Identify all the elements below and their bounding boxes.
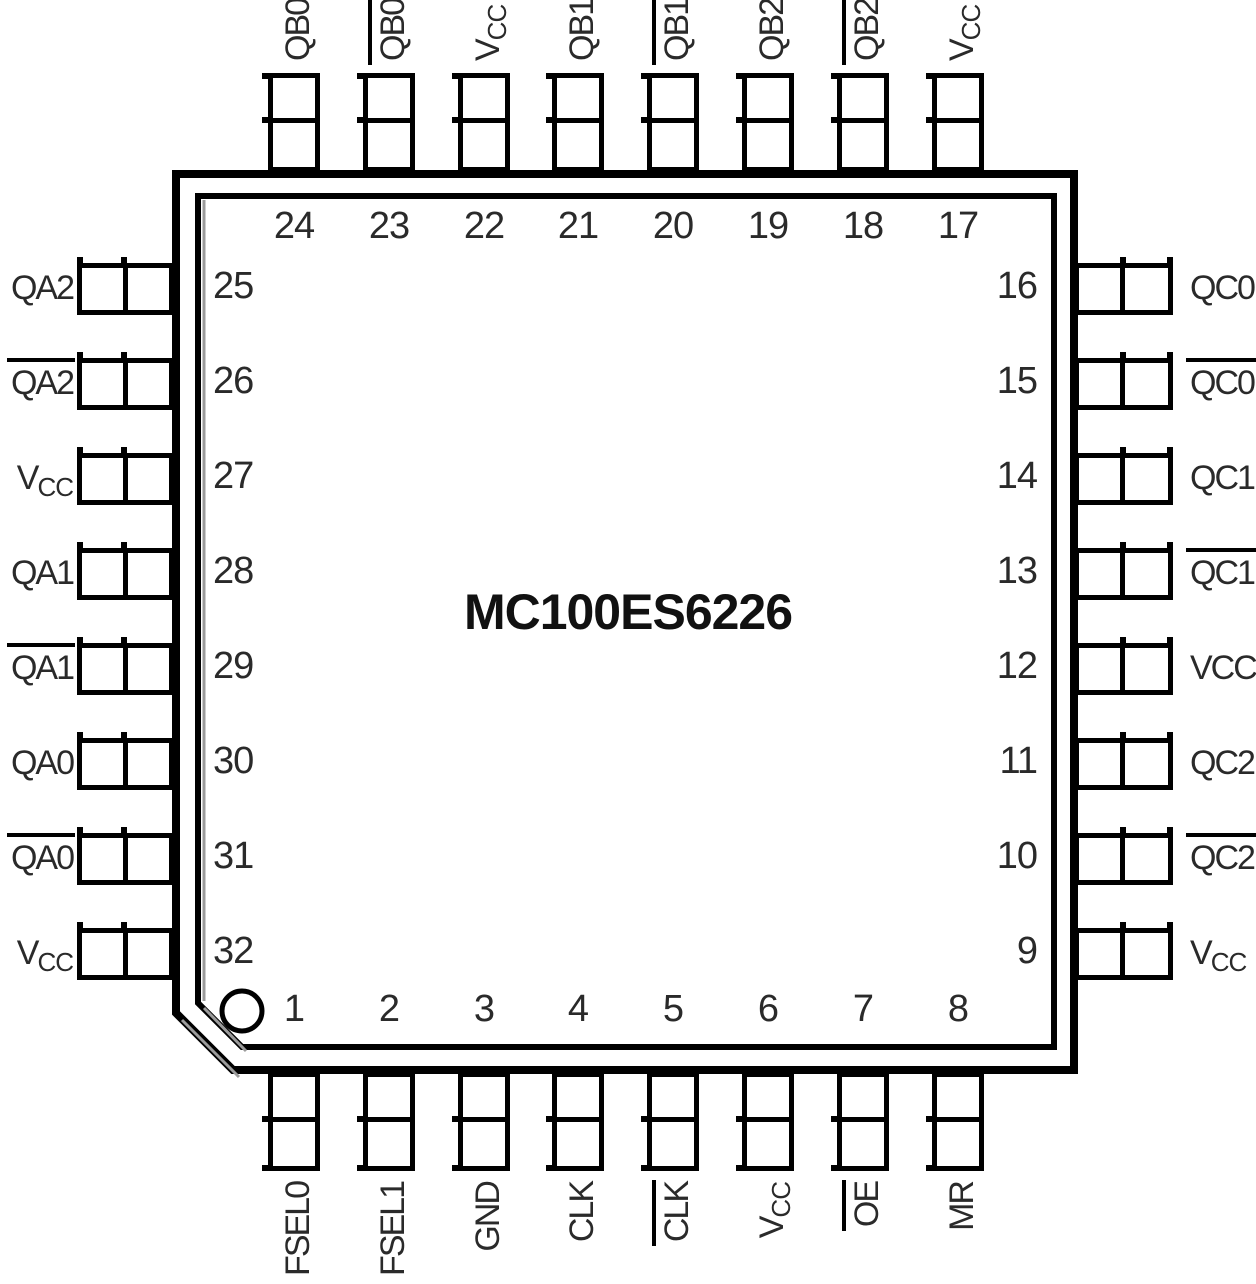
pin-7-label-text: OE — [842, 1180, 886, 1231]
pin-25-label-text: QA2 — [7, 263, 75, 307]
pin-18-number: 18 — [818, 205, 908, 247]
pin-9-label-text: VCC — [1186, 928, 1248, 974]
pin-30-box — [77, 738, 174, 790]
pin-16-box — [1074, 263, 1173, 315]
pin-6-tick-0 — [736, 1116, 742, 1122]
pin-5-label: CLK — [652, 1180, 694, 1284]
pin-25-divider — [123, 263, 128, 315]
pin-7-label-main: OE — [848, 1182, 886, 1227]
pin-7-tick-1 — [831, 1165, 837, 1171]
pin-21-box — [552, 73, 604, 172]
pin-29-label: QA1 — [0, 643, 75, 687]
pin-10-number: 10 — [947, 835, 1037, 877]
pin-11-label: QC2 — [1186, 738, 1256, 782]
pin-17-box — [932, 73, 984, 172]
pin-29-label-text: QA1 — [7, 643, 75, 687]
pin-4-label: CLK — [557, 1180, 599, 1284]
pin-6-box — [742, 1072, 794, 1171]
pin-6-tick-1 — [736, 1165, 742, 1171]
pin-7-tick-0 — [831, 1116, 837, 1122]
pin-8-label-text: MR — [937, 1180, 981, 1235]
pin-32-divider — [123, 928, 128, 980]
pin-9-label: VCC — [1186, 928, 1256, 974]
pin-4-tick-1 — [546, 1165, 552, 1171]
pin-5-tick-0 — [641, 1116, 647, 1122]
pin-16-label-main: QC0 — [1190, 269, 1254, 307]
pin-12-label-main: VCC — [1190, 649, 1256, 687]
pin-23-label: QB0 — [368, 0, 410, 65]
pin-20-divider — [647, 118, 699, 123]
pin-15-tick-1 — [1167, 352, 1173, 358]
pin-11-tick-0 — [1120, 732, 1126, 738]
pin-3-tick-0 — [452, 1116, 458, 1122]
pin-2-number: 2 — [344, 988, 434, 1030]
pin-31-tick-0 — [77, 827, 83, 833]
pin-27-label-main: V — [17, 459, 38, 497]
pin-29-number: 29 — [213, 645, 303, 687]
pin-3-label: GND — [463, 1180, 505, 1284]
pin-28-tick-0 — [77, 542, 83, 548]
pin-20-box — [647, 73, 699, 172]
pin-12-tick-0 — [1120, 637, 1126, 643]
pin-24-label: QB0 — [273, 0, 315, 65]
pin-16-tick-0 — [1120, 257, 1126, 263]
pin-5-box — [647, 1072, 699, 1171]
pin-3-label-main: GND — [469, 1182, 507, 1252]
pin-28-label-text: QA1 — [7, 548, 75, 592]
pin-7-divider — [837, 1117, 889, 1122]
pin-20-tick-0 — [641, 73, 647, 79]
pin-26-divider — [123, 358, 128, 410]
pin-29-tick-0 — [77, 637, 83, 643]
pin-11-divider — [1120, 738, 1125, 790]
pin-27-number: 27 — [213, 455, 303, 497]
pin-28-label: QA1 — [0, 548, 75, 592]
pin-20-label-main: QB1 — [658, 0, 696, 61]
pin-19-label-main: QB2 — [753, 0, 791, 61]
pin-11-label-main: QC2 — [1190, 744, 1254, 782]
pin-3-number: 3 — [439, 988, 529, 1030]
pin-23-box — [363, 73, 415, 172]
pin-3-label-text: GND — [463, 1180, 507, 1256]
pin-22-label-sub: CC — [482, 5, 512, 41]
pin-18-label-text: QB2 — [842, 0, 886, 65]
pin-31-tick-1 — [121, 827, 127, 833]
pin-32-label-main: V — [17, 934, 38, 972]
pin-16-number: 16 — [947, 265, 1037, 307]
pin-31-box — [77, 833, 174, 885]
pin-31-number: 31 — [213, 835, 303, 877]
pin-22-box — [458, 73, 510, 172]
pin-21-number: 21 — [533, 205, 623, 247]
pin-2-tick-1 — [357, 1165, 363, 1171]
pin-17-divider — [932, 118, 984, 123]
chip-part-number: MC100ES6226 — [328, 586, 928, 638]
pin-6-label-sub: CC — [766, 1182, 796, 1218]
pin-4-number: 4 — [533, 988, 623, 1030]
pin-14-label-main: QC1 — [1190, 459, 1254, 497]
pin-6-label-main: V — [753, 1218, 791, 1239]
pin-10-label-main: QC2 — [1190, 839, 1254, 877]
pin-31-label: QA0 — [0, 833, 75, 877]
pin-4-divider — [552, 1117, 604, 1122]
pin-14-box — [1074, 453, 1173, 505]
pin-20-number: 20 — [628, 205, 718, 247]
pin-24-tick-0 — [262, 73, 268, 79]
pin-26-label-text: QA2 — [7, 358, 75, 402]
pin-21-divider — [552, 118, 604, 123]
pin-1-divider — [268, 1117, 320, 1122]
pin-10-tick-1 — [1167, 827, 1173, 833]
pin-19-box — [742, 73, 794, 172]
pin-13-label-text: QC1 — [1186, 548, 1256, 592]
pin-27-label: VCC — [0, 453, 75, 499]
pin-22-tick-0 — [452, 73, 458, 79]
pin-7-box — [837, 1072, 889, 1171]
pin-9-label-main: V — [1190, 934, 1211, 972]
pin-13-tick-1 — [1167, 542, 1173, 548]
pin-15-box — [1074, 358, 1173, 410]
pin-32-label: VCC — [0, 928, 75, 974]
pin-20-label: QB1 — [652, 0, 694, 65]
pin-12-label: VCC — [1186, 643, 1256, 687]
pin-25-tick-0 — [77, 257, 83, 263]
pin-28-number: 28 — [213, 550, 303, 592]
pin-15-label-text: QC0 — [1186, 358, 1256, 402]
pin-15-tick-0 — [1120, 352, 1126, 358]
pin-28-tick-1 — [121, 542, 127, 548]
pin-27-divider — [123, 453, 128, 505]
pin-24-label-text: QB0 — [273, 0, 317, 65]
pin-15-label-main: QC0 — [1190, 364, 1254, 402]
pin-19-label: QB2 — [747, 0, 789, 65]
pin-3-box — [458, 1072, 510, 1171]
pin-13-tick-0 — [1120, 542, 1126, 548]
pin-9-tick-1 — [1167, 922, 1173, 928]
pin-12-label-text: VCC — [1186, 643, 1256, 687]
pin-26-number: 26 — [213, 360, 303, 402]
pin-9-number: 9 — [947, 930, 1037, 972]
pin-6-label: VCC — [747, 1180, 789, 1284]
pin-15-number: 15 — [947, 360, 1037, 402]
pin-16-label: QC0 — [1186, 263, 1256, 307]
pin-2-divider — [363, 1117, 415, 1122]
pin-23-label-text: QB0 — [368, 0, 412, 65]
pin-17-number: 17 — [913, 205, 1003, 247]
pin-24-tick-1 — [262, 117, 268, 123]
pin-11-number: 11 — [947, 740, 1037, 782]
pin-8-box — [932, 1072, 984, 1171]
pin-28-box — [77, 548, 174, 600]
pin-1-label: FSEL0 — [273, 1180, 315, 1284]
pin-21-tick-1 — [546, 117, 552, 123]
pin-14-divider — [1120, 453, 1125, 505]
pin-27-tick-1 — [121, 447, 127, 453]
pin-23-tick-0 — [357, 73, 363, 79]
pin-17-label: VCC — [937, 0, 979, 65]
pin-8-tick-1 — [926, 1165, 932, 1171]
pin-29-label-main: QA1 — [11, 649, 73, 687]
pin-5-tick-1 — [641, 1165, 647, 1171]
pin-23-tick-1 — [357, 117, 363, 123]
pin-1-tick-1 — [262, 1165, 268, 1171]
pin-17-label-main: V — [943, 40, 981, 61]
pin-16-divider — [1120, 263, 1125, 315]
pin-14-label-text: QC1 — [1186, 453, 1256, 497]
pin-7-label: OE — [842, 1180, 884, 1284]
pin-25-label: QA2 — [0, 263, 75, 307]
pin-18-label-main: QB2 — [848, 0, 886, 61]
pin-14-tick-1 — [1167, 447, 1173, 453]
pin-22-tick-1 — [452, 117, 458, 123]
pin-2-tick-0 — [357, 1116, 363, 1122]
pin-32-label-text: VCC — [13, 928, 75, 974]
pin-26-label-main: QA2 — [11, 364, 73, 402]
pin-12-tick-1 — [1167, 637, 1173, 643]
pin-19-tick-0 — [736, 73, 742, 79]
pin-9-label-sub: CC — [1211, 947, 1247, 977]
pin-5-number: 5 — [628, 988, 718, 1030]
pin-29-tick-1 — [121, 637, 127, 643]
pin-8-tick-0 — [926, 1116, 932, 1122]
pin-13-number: 13 — [947, 550, 1037, 592]
pin-17-tick-0 — [926, 73, 932, 79]
pin-31-divider — [123, 833, 128, 885]
pin-18-tick-1 — [831, 117, 837, 123]
pin-31-label-main: QA0 — [11, 839, 73, 877]
pin-22-label-main: V — [469, 40, 507, 61]
pin-23-label-main: QB0 — [374, 0, 412, 61]
pin-8-label: MR — [937, 1180, 979, 1284]
pin-21-label-text: QB1 — [557, 0, 601, 65]
pin-30-divider — [123, 738, 128, 790]
pin-30-number: 30 — [213, 740, 303, 782]
pin-12-number: 12 — [947, 645, 1037, 687]
pin-22-label-text: VCC — [463, 3, 509, 65]
pin-11-box — [1074, 738, 1173, 790]
pin-17-label-sub: CC — [956, 5, 986, 41]
pin-3-tick-1 — [452, 1165, 458, 1171]
pin-24-box — [268, 73, 320, 172]
pin-14-number: 14 — [947, 455, 1037, 497]
pin-8-label-main: MR — [943, 1182, 981, 1231]
pin-11-tick-1 — [1167, 732, 1173, 738]
pin-13-label-main: QC1 — [1190, 554, 1254, 592]
pin-30-label: QA0 — [0, 738, 75, 782]
pin-18-box — [837, 73, 889, 172]
pin-30-tick-1 — [121, 732, 127, 738]
pin-10-tick-0 — [1120, 827, 1126, 833]
pin-27-label-sub: CC — [37, 472, 73, 502]
pin-22-number: 22 — [439, 205, 529, 247]
pin-18-tick-0 — [831, 73, 837, 79]
pin-1-label-main: FSEL0 — [279, 1182, 317, 1276]
pin-1-number: 1 — [249, 988, 339, 1030]
pin-2-label-text: FSEL1 — [368, 1180, 412, 1280]
pin-31-label-text: QA0 — [7, 833, 75, 877]
pin-26-tick-1 — [121, 352, 127, 358]
pin-22-divider — [458, 118, 510, 123]
pin-24-label-main: QB0 — [279, 0, 317, 61]
pin-14-tick-0 — [1120, 447, 1126, 453]
pin-8-divider — [932, 1117, 984, 1122]
pin-9-tick-0 — [1120, 922, 1126, 928]
pin-5-label-main: CLK — [658, 1182, 696, 1242]
pin-27-tick-0 — [77, 447, 83, 453]
pin-4-tick-0 — [546, 1116, 552, 1122]
pin-6-divider — [742, 1117, 794, 1122]
pin-28-label-main: QA1 — [11, 554, 73, 592]
pin-9-box — [1074, 928, 1173, 980]
pin-25-tick-1 — [121, 257, 127, 263]
pin-1-tick-0 — [262, 1116, 268, 1122]
pin-18-divider — [837, 118, 889, 123]
pin-28-divider — [123, 548, 128, 600]
pin-5-label-text: CLK — [652, 1180, 696, 1246]
pin-4-box — [552, 1072, 604, 1171]
pin-32-tick-1 — [121, 922, 127, 928]
pin-15-label: QC0 — [1186, 358, 1256, 402]
pin-19-number: 19 — [723, 205, 813, 247]
pin-12-divider — [1120, 643, 1125, 695]
pin-30-label-text: QA0 — [7, 738, 75, 782]
pin-16-label-text: QC0 — [1186, 263, 1256, 307]
pin-19-divider — [742, 118, 794, 123]
pin-21-label: QB1 — [557, 0, 599, 65]
pin-8-number: 8 — [913, 988, 1003, 1030]
pin-26-tick-0 — [77, 352, 83, 358]
pin-1-label-text: FSEL0 — [273, 1180, 317, 1280]
pin-32-number: 32 — [213, 930, 303, 972]
pin-20-label-text: QB1 — [652, 0, 696, 65]
pin-25-box — [77, 263, 174, 315]
pin-5-divider — [647, 1117, 699, 1122]
pin-11-label-text: QC2 — [1186, 738, 1256, 782]
pin-23-divider — [363, 118, 415, 123]
pin-29-divider — [123, 643, 128, 695]
pin-6-label-text: VCC — [747, 1180, 793, 1242]
pin-6-number: 6 — [723, 988, 813, 1030]
pin-23-number: 23 — [344, 205, 434, 247]
pin-13-box — [1074, 548, 1173, 600]
pin-2-label: FSEL1 — [368, 1180, 410, 1284]
pin-17-label-text: VCC — [937, 3, 983, 65]
pin-32-box — [77, 928, 174, 980]
pin-27-box — [77, 453, 174, 505]
pin-21-tick-0 — [546, 73, 552, 79]
pin-14-label: QC1 — [1186, 453, 1256, 497]
pin-2-label-main: FSEL1 — [374, 1182, 412, 1276]
pin-13-label: QC1 — [1186, 548, 1256, 592]
pin-4-label-text: CLK — [557, 1180, 601, 1246]
pin-30-tick-0 — [77, 732, 83, 738]
pin-25-label-main: QA2 — [11, 269, 73, 307]
pin-10-label: QC2 — [1186, 833, 1256, 877]
pinout-diagram: MC100ES6226 24QB023QB022VCC21QB120QB119Q… — [0, 0, 1256, 1284]
pin-1-box — [268, 1072, 320, 1171]
pin-7-number: 7 — [818, 988, 908, 1030]
pin-13-divider — [1120, 548, 1125, 600]
pin-19-label-text: QB2 — [747, 0, 791, 65]
pin-10-box — [1074, 833, 1173, 885]
pin-10-divider — [1120, 833, 1125, 885]
pin-22-label: VCC — [463, 0, 505, 65]
pin-10-label-text: QC2 — [1186, 833, 1256, 877]
pin-24-divider — [268, 118, 320, 123]
pin-29-box — [77, 643, 174, 695]
pin-26-label: QA2 — [0, 358, 75, 402]
pin-30-label-main: QA0 — [11, 744, 73, 782]
pin-20-tick-1 — [641, 117, 647, 123]
pin-3-divider — [458, 1117, 510, 1122]
pin-24-number: 24 — [249, 205, 339, 247]
pin-32-tick-0 — [77, 922, 83, 928]
pin-17-tick-1 — [926, 117, 932, 123]
pin-19-tick-1 — [736, 117, 742, 123]
pin-25-number: 25 — [213, 265, 303, 307]
pin-26-box — [77, 358, 174, 410]
pin-12-box — [1074, 643, 1173, 695]
pin-2-box — [363, 1072, 415, 1171]
pin-9-divider — [1120, 928, 1125, 980]
package-artwork — [0, 0, 1256, 1284]
pin-15-divider — [1120, 358, 1125, 410]
pin-16-tick-1 — [1167, 257, 1173, 263]
pin-18-label: QB2 — [842, 0, 884, 65]
pin-4-label-main: CLK — [563, 1182, 601, 1242]
pin-21-label-main: QB1 — [563, 0, 601, 61]
pin-27-label-text: VCC — [13, 453, 75, 499]
pin-32-label-sub: CC — [37, 947, 73, 977]
